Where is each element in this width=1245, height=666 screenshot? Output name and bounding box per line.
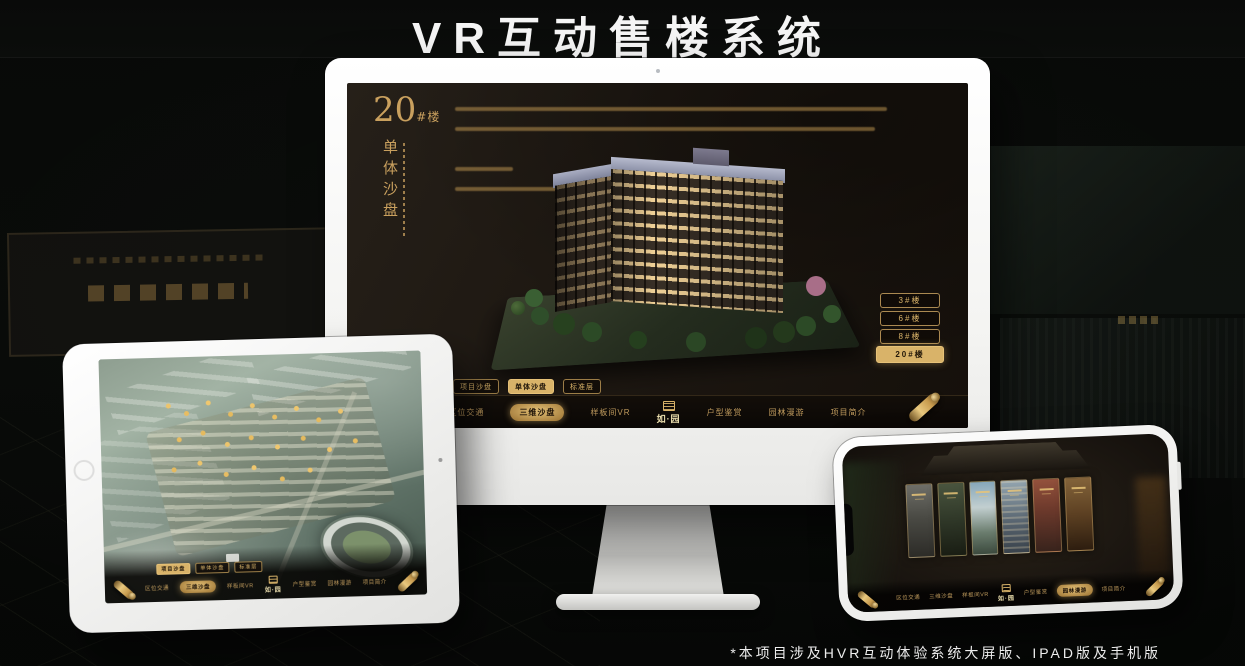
page-subtitle: 单体沙盘 (380, 139, 401, 223)
building-button-8[interactable]: 8#楼 (880, 329, 940, 344)
building-button-20[interactable]: 20#楼 (876, 346, 944, 363)
brand-logo: 如·园 (997, 584, 1015, 603)
building-button-6[interactable]: 6#楼 (880, 311, 940, 326)
subtitle-ornament (403, 143, 405, 239)
building-heading: 20#楼 (373, 93, 440, 127)
description-line (455, 127, 875, 131)
building-facade (555, 176, 611, 312)
tablet-device: 项目沙盘 单体沙盘 标准层 区位交通 三维沙盘 样板间VR 如·园 户型鉴赏 园… (62, 334, 460, 634)
home-button[interactable] (73, 460, 95, 482)
view-tabs: 项目沙盘 单体沙盘 标准层 (156, 561, 262, 575)
nav-item-unit-gallery[interactable]: 户型鉴赏 (293, 579, 317, 588)
phone-bottom-nav: 区位交通 三维沙盘 样板间VR 如·园 户型鉴赏 园林漫游 项目简介 (876, 577, 1147, 608)
panel-card[interactable] (905, 483, 935, 558)
nav-item-project-intro[interactable]: 项目简介 (831, 407, 867, 418)
tab-standard-floor[interactable]: 标准层 (234, 561, 262, 573)
pavilion-silhouette (920, 441, 1091, 476)
phone-screen: 区位交通 三维沙盘 样板间VR 如·园 户型鉴赏 园林漫游 项目简介 (842, 433, 1175, 613)
nav-item-3d-sandbox[interactable]: 三维沙盘 (510, 404, 564, 421)
camera-icon (438, 458, 442, 462)
tab-project-sandbox[interactable]: 项目沙盘 (453, 379, 499, 394)
tablet-bottom-nav: 区位交通 三维沙盘 样板间VR 如·园 户型鉴赏 园林漫游 项目简介 (129, 571, 403, 599)
nav-item-garden-roam[interactable]: 园林漫游 (328, 579, 352, 588)
panel-card[interactable] (937, 482, 967, 557)
tab-single-sandbox[interactable]: 单体沙盘 (508, 379, 554, 394)
nav-item-3d-sandbox[interactable]: 三维沙盘 (180, 580, 216, 593)
scroll-icon[interactable] (856, 590, 877, 609)
monitor-stand (592, 505, 724, 597)
scroll-icon[interactable] (1145, 577, 1166, 597)
panel-card[interactable] (1001, 479, 1031, 554)
nav-item-unit-gallery[interactable]: 户型鉴赏 (1024, 587, 1048, 596)
brand-logo: 如·园 (657, 401, 681, 425)
tab-project-sandbox[interactable]: 项目沙盘 (156, 563, 190, 575)
nav-item-garden-roam[interactable]: 园林漫游 (1056, 584, 1092, 597)
nav-item-location-traffic[interactable]: 区位交通 (145, 584, 169, 593)
background-photo (986, 146, 1245, 314)
footnote: *本项目涉及HVR互动体验系统大屏版、IPAD版及手机版 (730, 643, 1161, 663)
building-markers[interactable] (166, 403, 171, 408)
phone-device: 区位交通 三维沙盘 样板间VR 如·园 户型鉴赏 园林漫游 项目简介 (832, 424, 1183, 622)
page-title: VR互动售楼系统 (0, 2, 1245, 66)
description-line (455, 107, 887, 111)
tablet-nav-bar: 项目沙盘 单体沙盘 标准层 区位交通 三维沙盘 样板间VR 如·园 户型鉴赏 园… (104, 542, 427, 603)
panel-card[interactable] (1032, 478, 1062, 553)
nav-item-project-intro[interactable]: 项目简介 (1102, 584, 1126, 593)
tablet-screen: 项目沙盘 单体沙盘 标准层 区位交通 三维沙盘 样板间VR 如·园 户型鉴赏 园… (98, 350, 427, 603)
brand-logo-text: 如·园 (265, 584, 282, 593)
seal-icon (1001, 584, 1010, 592)
nav-item-3d-sandbox[interactable]: 三维沙盘 (929, 591, 953, 600)
scroll-icon[interactable] (907, 391, 941, 423)
tab-single-sandbox[interactable]: 单体沙盘 (195, 562, 229, 574)
nav-item-location-traffic[interactable]: 区位交通 (896, 593, 920, 602)
nav-item-showroom-vr[interactable]: 样板间VR (227, 581, 254, 590)
building-number-suffix: #楼 (416, 110, 440, 124)
panel-card[interactable] (1064, 476, 1094, 551)
brand-logo-text: 如·园 (657, 412, 681, 425)
building-number: 20 (373, 90, 416, 130)
seal-icon (268, 576, 277, 584)
building-penthouse (693, 148, 729, 167)
building-facade (611, 169, 783, 313)
panel-card[interactable] (969, 480, 999, 555)
nav-item-showroom-vr[interactable]: 样板间VR (590, 407, 630, 418)
compass-widget (226, 554, 239, 562)
brand-logo: 如·园 (264, 575, 281, 593)
camera-icon (656, 69, 660, 73)
nav-item-showroom-vr[interactable]: 样板间VR (962, 590, 989, 599)
background-brand-mark (1118, 316, 1160, 324)
building-button-3[interactable]: 3#楼 (880, 293, 940, 308)
monitor-base (556, 594, 760, 610)
seal-icon (663, 401, 675, 411)
view-tabs: 项目沙盘 单体沙盘 标准层 (453, 379, 601, 394)
brand-logo-text: 如·园 (998, 593, 1015, 603)
nav-item-garden-roam[interactable]: 园林漫游 (769, 407, 805, 418)
trees-decoration (511, 301, 525, 315)
nav-item-unit-gallery[interactable]: 户型鉴赏 (707, 407, 743, 418)
promo-banner: VR互动售楼系统 20#楼 单体沙盘 3#楼 (0, 0, 1245, 666)
building-3d-render[interactable] (497, 151, 857, 391)
scene-panels (905, 476, 1094, 558)
nav-item-project-intro[interactable]: 项目简介 (363, 578, 387, 587)
tab-standard-floor[interactable]: 标准层 (563, 379, 601, 394)
doorway-glow (1135, 477, 1169, 578)
